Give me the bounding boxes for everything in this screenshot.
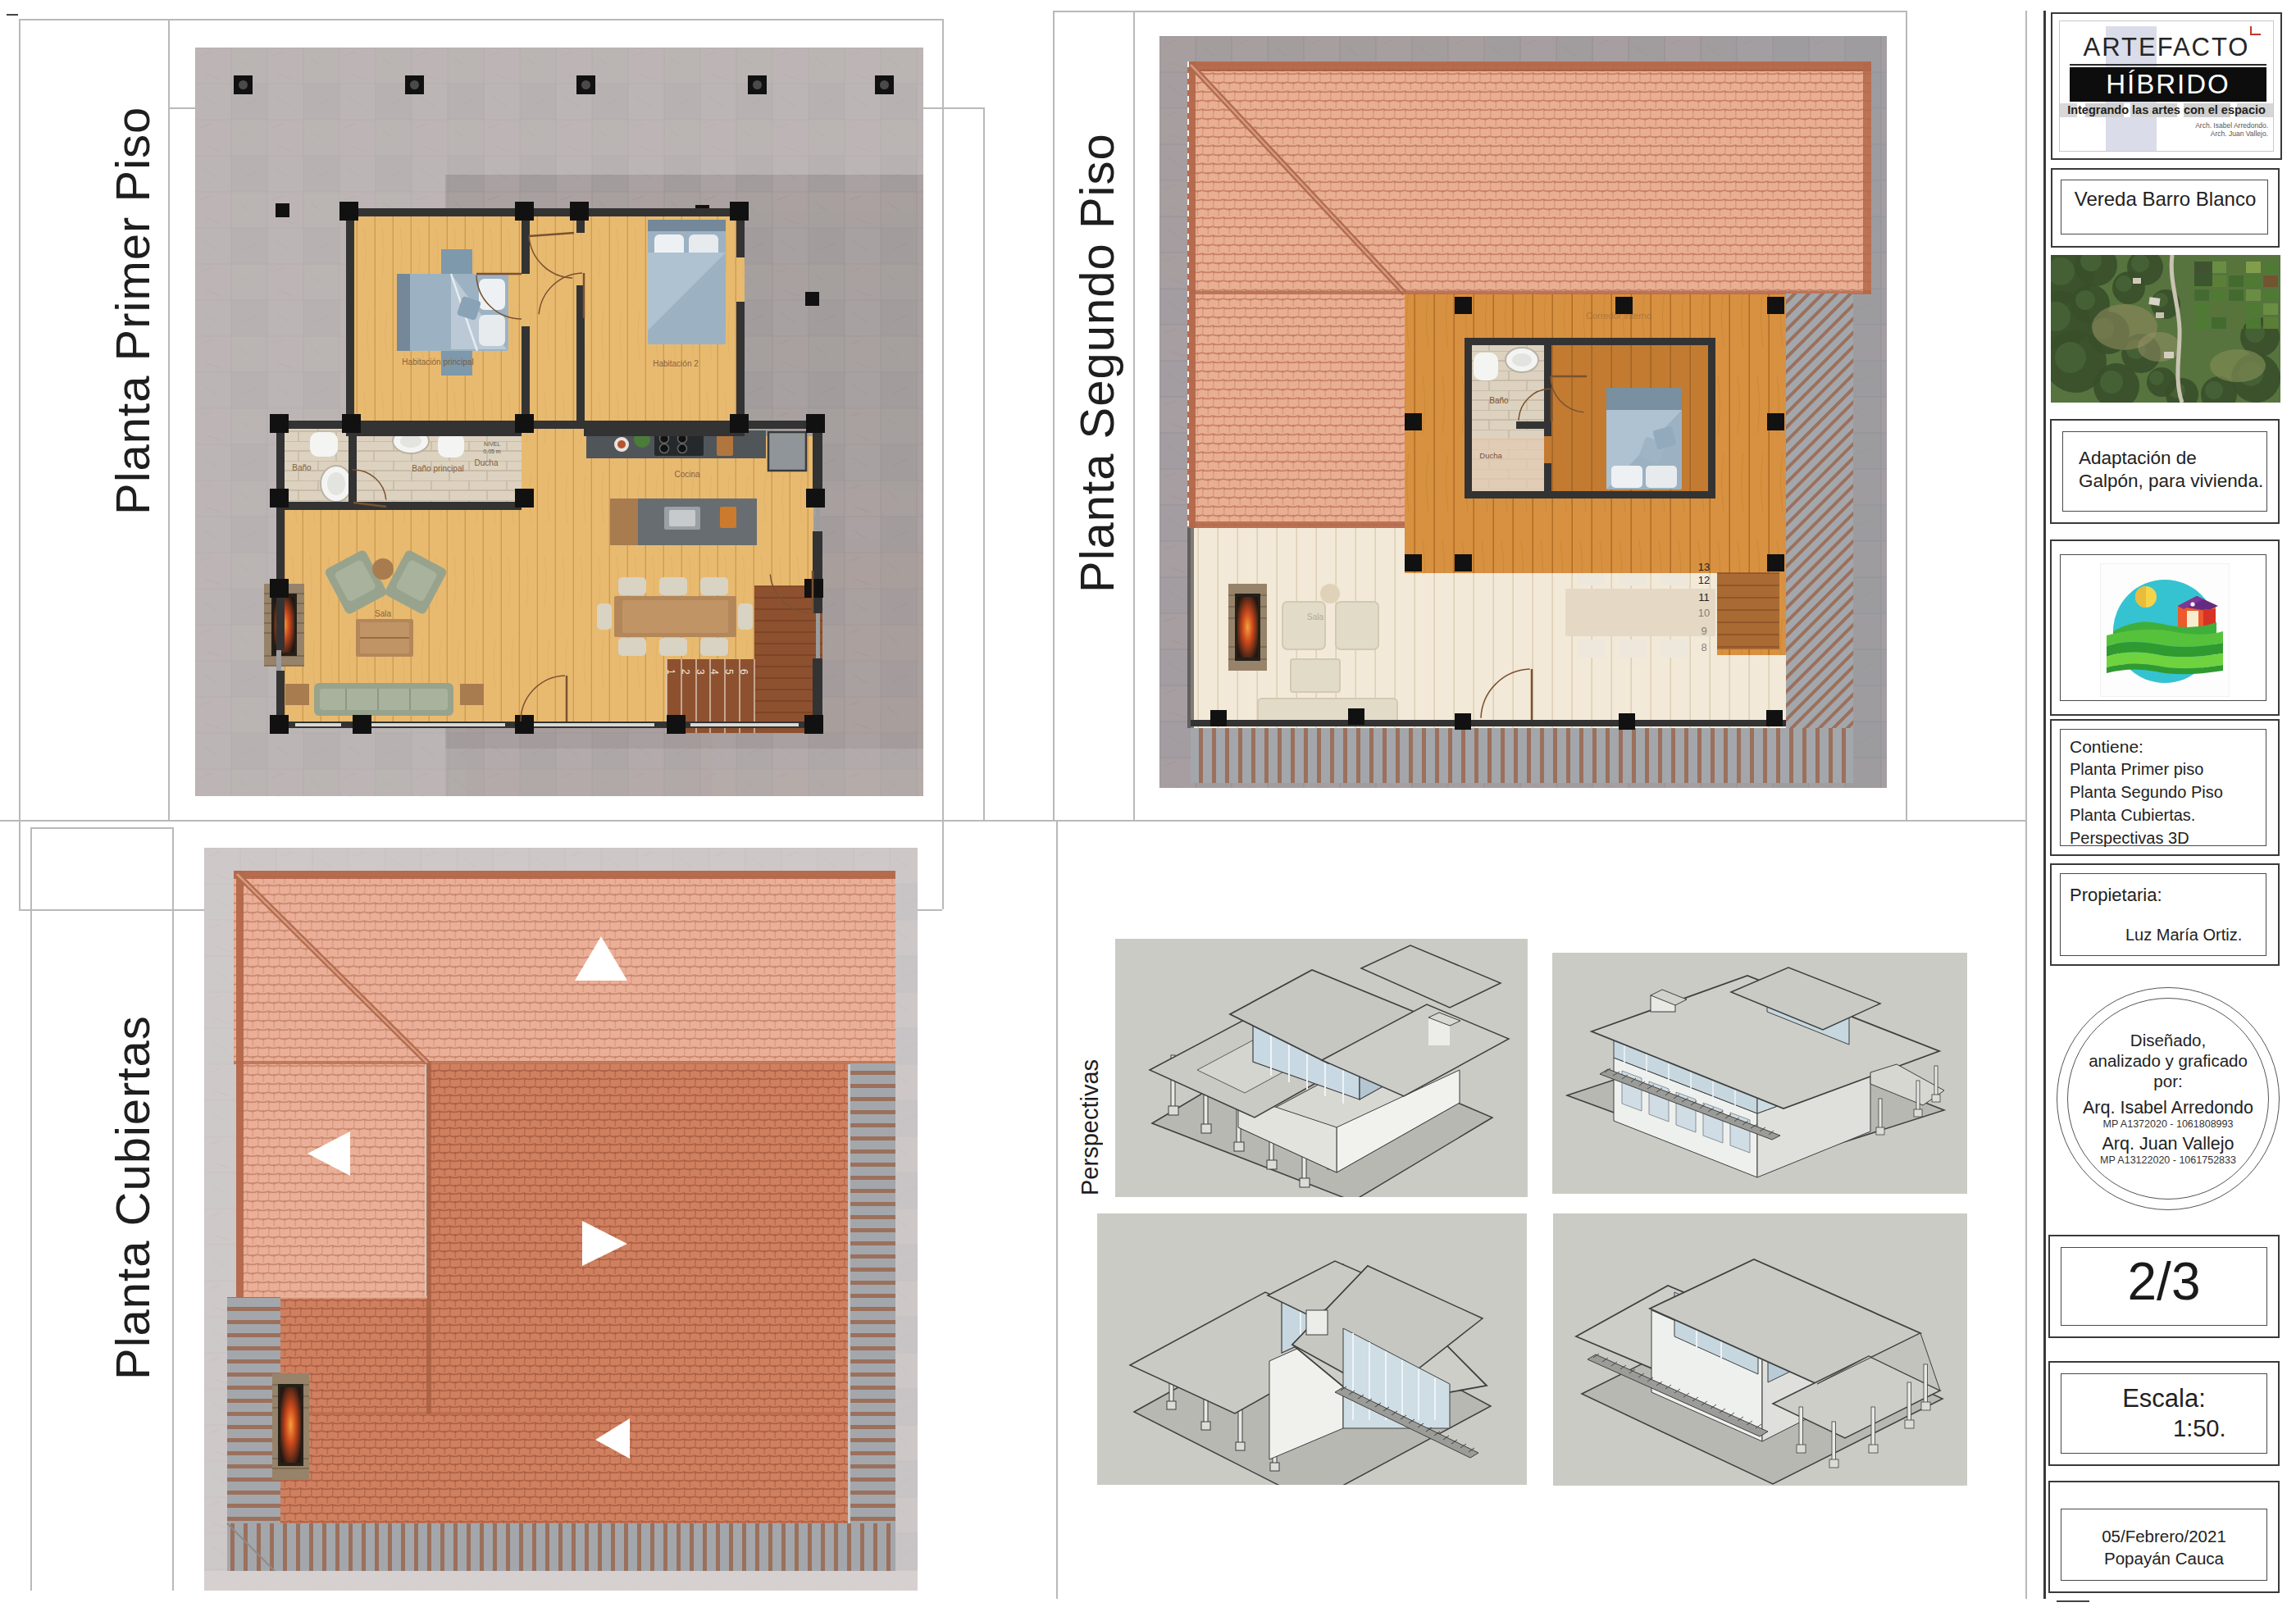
svg-text:0.05 m: 0.05 m [483, 448, 501, 454]
svg-text:Baño: Baño [1489, 396, 1509, 405]
svg-text:Ducha: Ducha [1479, 451, 1502, 460]
svg-text:Cocina: Cocina [674, 470, 700, 479]
svg-text:Baño principal: Baño principal [412, 464, 463, 473]
svg-text:11: 11 [1698, 591, 1710, 603]
svg-text:Habitación 2: Habitación 2 [653, 359, 699, 368]
svg-text:Habitación principal: Habitación principal [402, 357, 473, 366]
svg-text:10: 10 [1698, 607, 1710, 619]
svg-text:5: 5 [723, 669, 735, 675]
svg-text:13: 13 [1698, 561, 1710, 573]
svg-text:12: 12 [1698, 574, 1710, 586]
svg-text:Baño: Baño [292, 463, 312, 472]
svg-text:8: 8 [1701, 641, 1706, 653]
svg-text:3: 3 [695, 669, 706, 675]
svg-text:Sala: Sala [1307, 612, 1323, 621]
svg-text:1: 1 [665, 669, 676, 675]
svg-text:4: 4 [708, 669, 720, 675]
svg-text:9: 9 [1701, 625, 1706, 637]
svg-text:2: 2 [680, 669, 691, 675]
svg-text:NIVEL: NIVEL [484, 441, 500, 447]
svg-text:6: 6 [738, 669, 749, 675]
svg-text:Ducha: Ducha [475, 458, 499, 467]
svg-text:Sala: Sala [375, 609, 391, 618]
